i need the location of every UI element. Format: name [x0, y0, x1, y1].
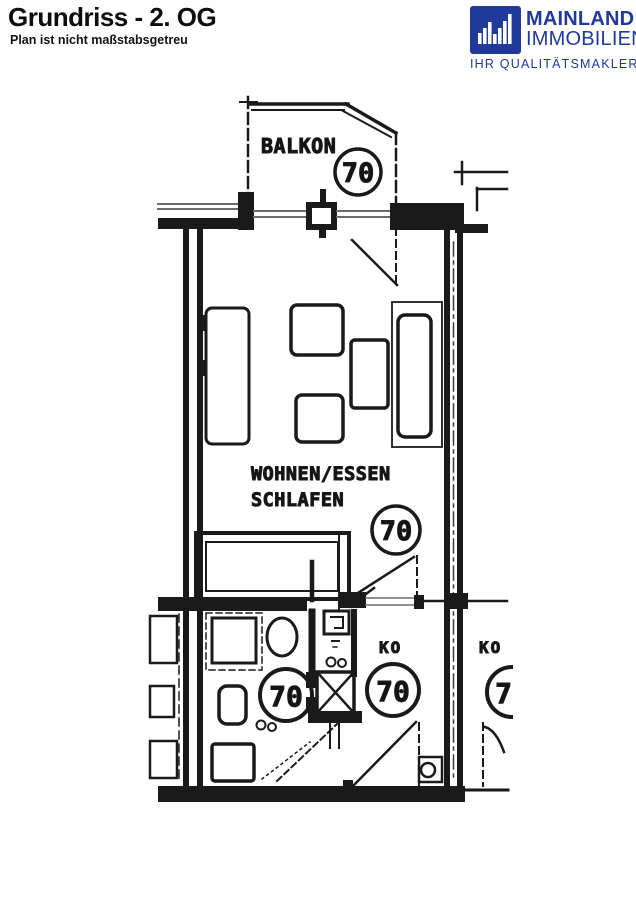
- kitchen-sink: [324, 611, 349, 634]
- unit-number-living: 70: [380, 516, 413, 547]
- kitchenette: [306, 611, 362, 748]
- corridor-ko: KO 70: [351, 638, 442, 788]
- toilet: [267, 618, 297, 656]
- wardrobe: [197, 308, 249, 444]
- shower: [206, 613, 262, 670]
- cooktop-burner: [327, 658, 336, 667]
- exterior-wall-bottom: [158, 780, 508, 802]
- balcony-door-swing: [352, 228, 397, 286]
- right-unit-corridor-label: KO: [479, 638, 502, 657]
- room-door-swing: [350, 556, 417, 598]
- entrance-door-swing: [351, 722, 419, 788]
- unit-number-right-unit: 70: [495, 677, 529, 710]
- unit-number-corridor: 70: [376, 675, 410, 708]
- door-stopper: [419, 757, 442, 782]
- chair: [291, 305, 343, 355]
- right-unit-door-arc: [485, 727, 504, 752]
- unit-number-bathroom: 70: [269, 680, 303, 713]
- corridor-label: KO: [379, 638, 402, 657]
- left-neighbour-fixtures: [150, 614, 179, 782]
- cooktop-burner: [338, 659, 346, 667]
- living-room: WOHNEN/ESSEN SCHLAFEN 70: [196, 228, 442, 610]
- balcony: BALKON 70: [240, 97, 396, 206]
- exterior-wall-top: [158, 189, 464, 238]
- faucet-mark: [257, 721, 266, 730]
- balcony-label: BALKON: [261, 134, 336, 158]
- faucet-mark: [268, 723, 276, 731]
- table: [351, 340, 388, 408]
- balcony-door-post: [306, 189, 337, 238]
- right-unit: KO 70: [479, 638, 537, 786]
- interior-wall-middle: [158, 592, 507, 611]
- bed: [392, 302, 442, 447]
- living-room-label-line2: SCHLAFEN: [251, 490, 344, 511]
- unit-number-balcony: 70: [342, 158, 375, 189]
- floorplan-drawing: BALKON 70: [0, 0, 636, 900]
- bathtub: [212, 744, 254, 781]
- chair: [296, 395, 343, 442]
- bathroom-door-swing: [262, 724, 337, 781]
- living-room-label-line1: WOHNEN/ESSEN: [251, 464, 391, 485]
- wash-basin: [219, 686, 246, 724]
- floorplan-page: { "header": { "title": "Grundriss - 2. O…: [0, 0, 636, 900]
